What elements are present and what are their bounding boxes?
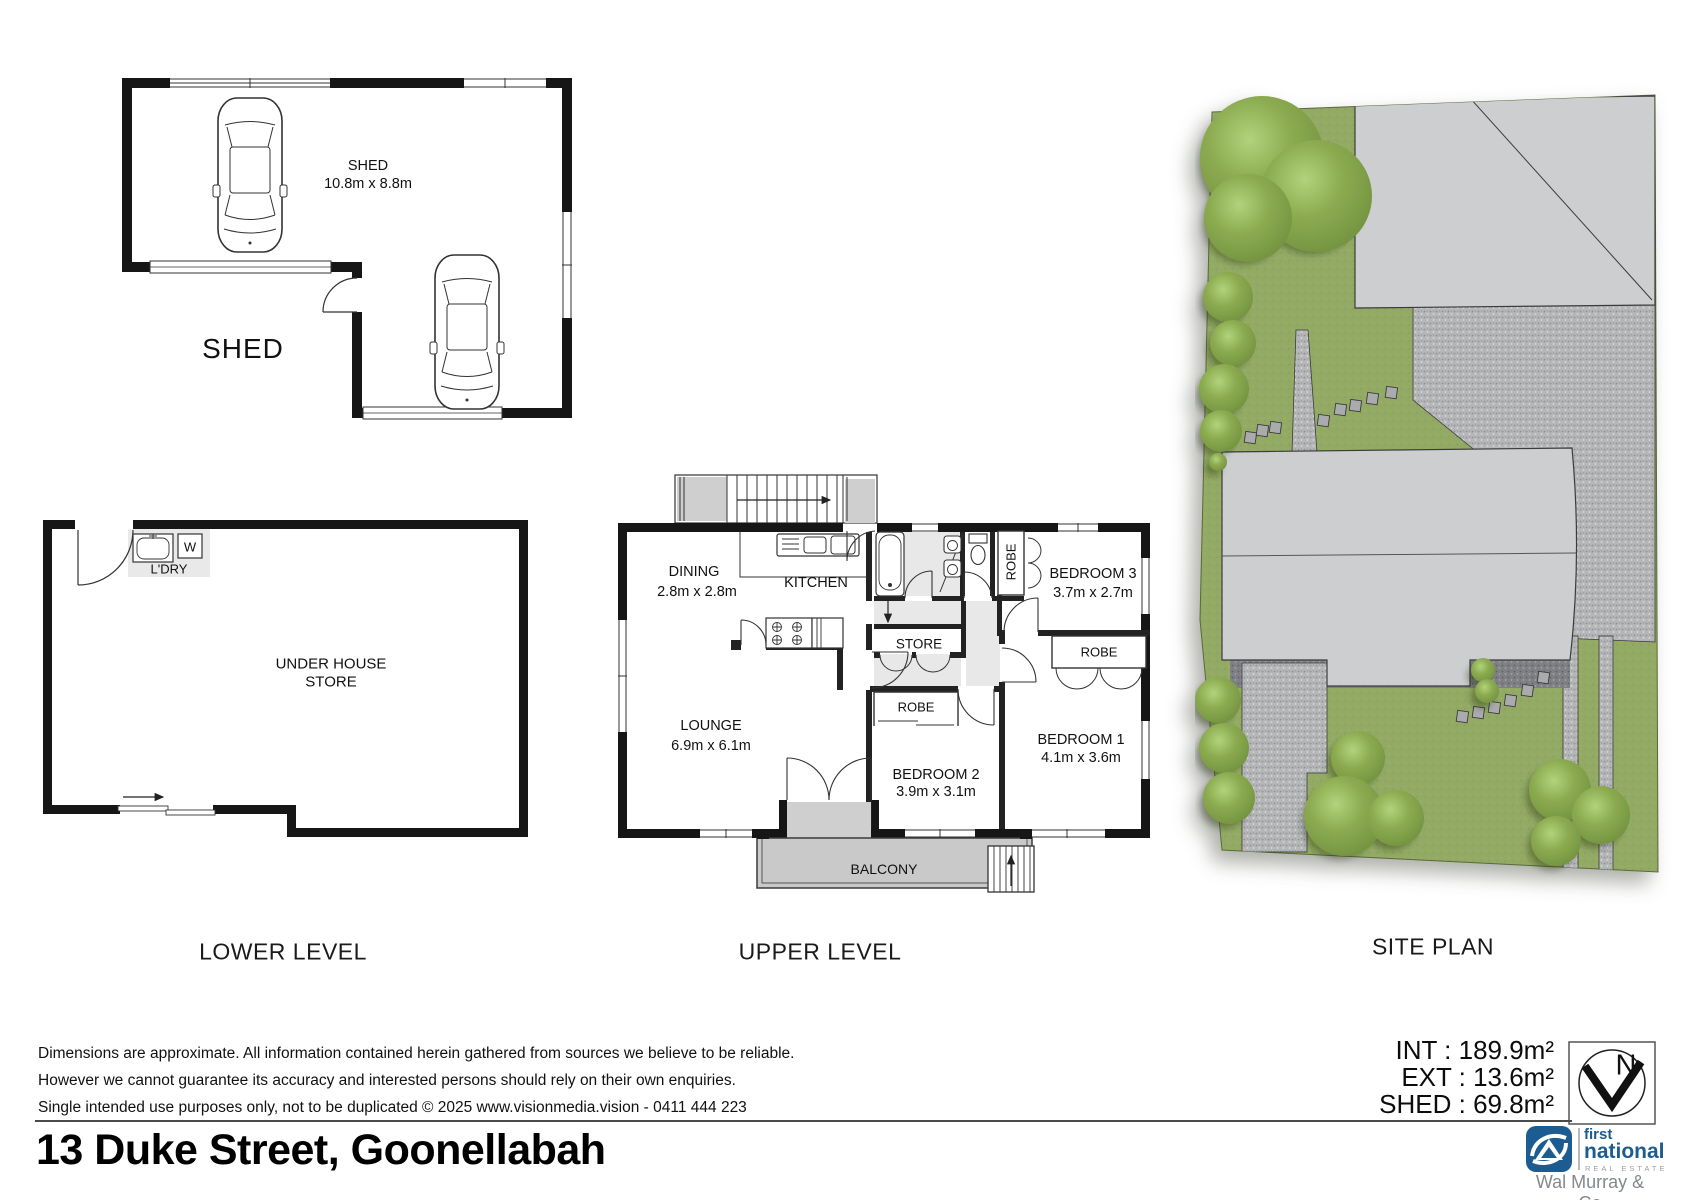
north-letter: N [1616,1052,1637,1081]
bedroom3-dims: 3.7m x 2.7m [1053,586,1133,601]
site-plan-rendering [1195,88,1665,883]
site-shed-building [1355,96,1655,308]
lower-level-plan [43,520,528,837]
dining-dims: 2.8m x 2.8m [657,585,737,600]
under-house-store-line2: STORE [305,675,356,690]
north-arrow [1568,1041,1656,1125]
logo-agency-name: Wal Murray & Co [1524,1172,1656,1200]
under-house-store-line1: UNDER HOUSE [276,657,387,672]
property-address: 13 Duke Street, Goonellabah [36,1126,606,1175]
logo-divider [1578,1128,1580,1170]
disclaimer-line-2: However we cannot guarantee its accuracy… [38,1072,736,1090]
bedroom3-label: BEDROOM 3 [1049,567,1136,582]
site-plan-title: SITE PLAN [1372,936,1494,959]
kitchen-label: KITCHEN [784,576,848,591]
laundry-label: L'DRY [151,563,188,576]
upper-level-plan [618,475,1150,892]
upper-level-title: UPPER LEVEL [739,941,902,964]
first-national-logo-icon [1526,1126,1572,1172]
robe-bed2-label: ROBE [898,701,935,714]
logo-text-national: national [1584,1140,1665,1164]
lounge-dims: 6.9m x 6.1m [671,739,751,754]
robe-bed1-label: ROBE [1081,646,1118,659]
dining-label: DINING [669,565,720,580]
area-shed: SHED : 69.8m² [1379,1089,1554,1120]
shed-plan-title: SHED [202,335,284,363]
disclaimer-line-3: Single intended use purposes only, not t… [38,1099,747,1117]
washer-label: W [184,541,196,554]
floorplan-sheet: N first national REAL ESTATE Wal Murray … [0,0,1696,1200]
bedroom2-dims: 3.9m x 3.1m [896,785,976,800]
bedroom1-dims: 4.1m x 3.6m [1041,751,1121,766]
footer-divider-line [35,1120,1572,1122]
robe-bed3-label: ROBE [1005,544,1018,581]
site-main-house [1222,448,1577,686]
shed-plan [122,78,572,419]
store-label: STORE [896,637,942,651]
lounge-label: LOUNGE [680,719,741,734]
shed-room-dims: 10.8m x 8.8m [324,177,412,192]
bedroom1-label: BEDROOM 1 [1037,733,1124,748]
lower-level-title: LOWER LEVEL [199,941,367,964]
disclaimer-line-1: Dimensions are approximate. All informat… [38,1045,794,1063]
balcony-label: BALCONY [851,862,918,876]
bedroom2-label: BEDROOM 2 [892,768,979,783]
shed-room-label: SHED [348,159,388,174]
